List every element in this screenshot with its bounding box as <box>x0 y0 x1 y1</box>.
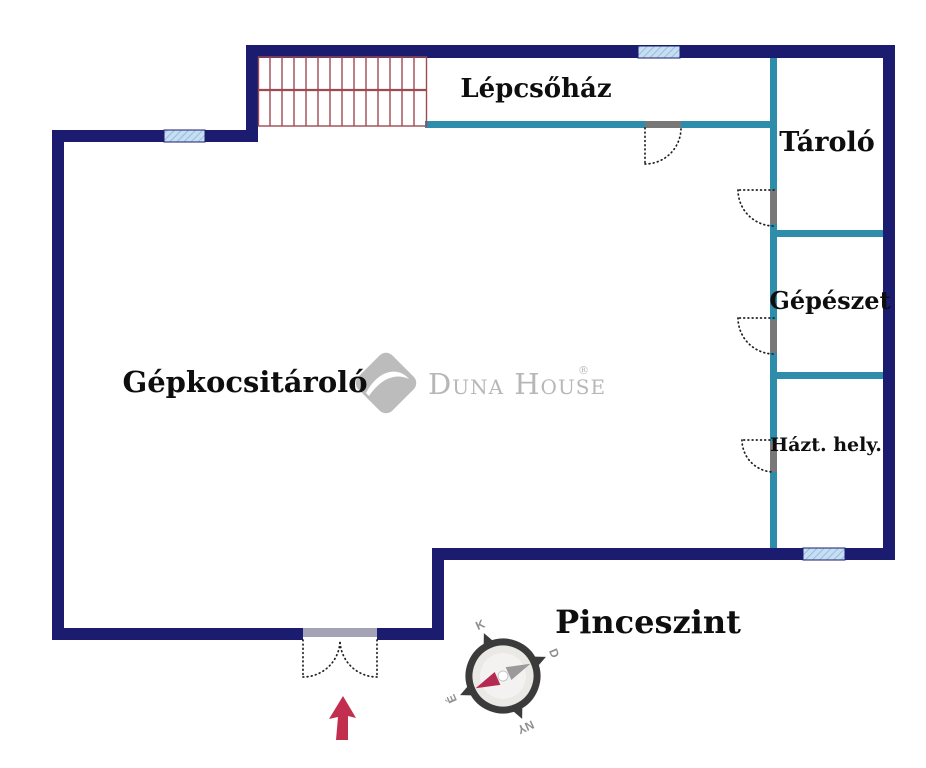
compass-label-south: D <box>546 646 562 660</box>
floor-plan-canvas: Duna House ® <box>0 0 926 768</box>
window-bottom-right <box>803 548 845 560</box>
room-label-tarolo: Tároló <box>779 127 875 158</box>
window-top <box>638 46 680 58</box>
door-jamb-entrance <box>303 628 377 637</box>
staircase <box>258 57 427 126</box>
wall-top-left-section <box>52 130 258 142</box>
door-arc-gepeszet <box>738 318 774 354</box>
room-label-lepcsohaz: Lépcsőház <box>460 74 611 104</box>
wall-stair-left <box>246 45 258 142</box>
door-arc-entrance-right <box>340 640 377 677</box>
brand-watermark: Duna House ® <box>352 349 606 417</box>
staircase-treads <box>270 57 414 126</box>
door-arc-tarolo <box>738 190 774 226</box>
wall-top <box>246 45 895 58</box>
room-label-hazt-hely: Házt. hely. <box>770 434 882 456</box>
door-jamb-lepcsohaz <box>645 121 681 128</box>
registered-mark: ® <box>578 364 590 377</box>
door-jamb-tarolo <box>770 190 777 224</box>
window-left-top <box>164 130 205 142</box>
wall-bottom-left-b <box>377 628 444 640</box>
room-label-gepkocsitarolo: Gépkocsitároló <box>122 365 367 399</box>
wall-bottom-left-a <box>52 628 303 640</box>
wall-step <box>432 548 444 640</box>
floor-title: Pinceszint <box>555 603 741 641</box>
room-label-gepeszet: Gépészet <box>769 286 890 315</box>
partition-staircase <box>425 121 777 128</box>
entrance-arrow-icon <box>329 696 356 740</box>
partition-tarolo-gepeszet <box>777 230 883 237</box>
wall-left <box>52 130 64 640</box>
floor-plan-drawing: Duna House ® <box>0 0 926 768</box>
door-arc-lepcsohaz <box>645 128 681 164</box>
compass-label-west: NY <box>515 717 536 737</box>
compass-label-east: K <box>473 617 487 633</box>
door-arc-entrance-left <box>303 640 340 677</box>
partition-gepeszet-hazt <box>777 372 883 379</box>
compass-label-north: É <box>443 692 460 705</box>
door-jamb-gepeszet <box>770 320 777 353</box>
